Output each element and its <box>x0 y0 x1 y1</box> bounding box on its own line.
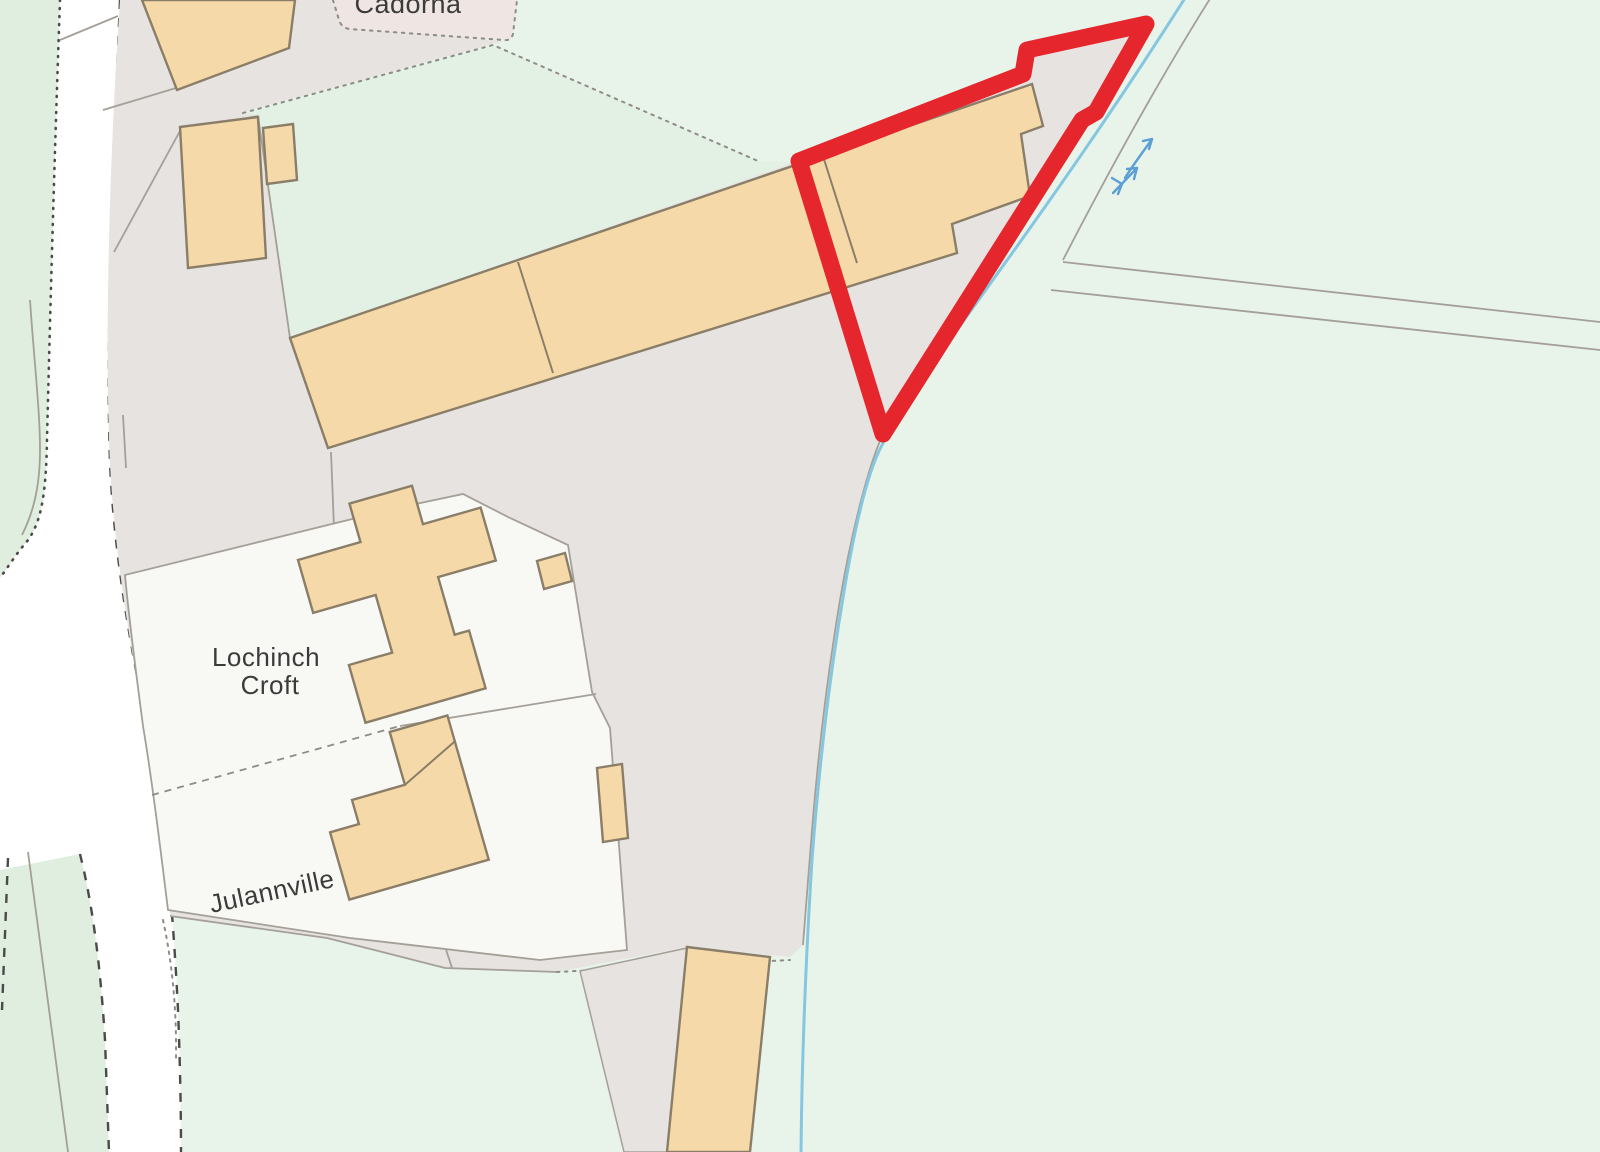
os-map: Cadorna Lochinch Croft Julannville <box>0 0 1600 1152</box>
outbuilding-square <box>537 553 572 589</box>
building-tall <box>180 117 266 268</box>
outbuilding-rect <box>597 764 628 842</box>
map-canvas: Cadorna Lochinch Croft Julannville <box>0 0 1600 1152</box>
label-lochinch: Lochinch <box>212 642 320 672</box>
label-cadorna: Cadorna <box>354 0 462 19</box>
label-croft: Croft <box>241 670 300 700</box>
building-small-strip <box>263 124 297 184</box>
